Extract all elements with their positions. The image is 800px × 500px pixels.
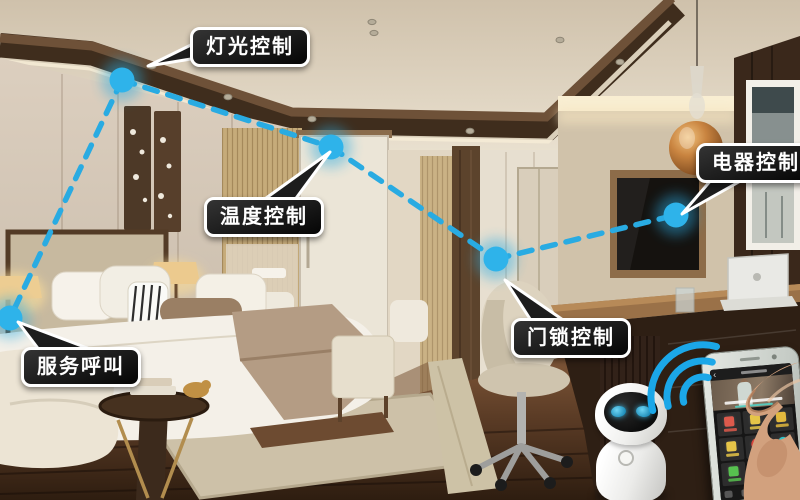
sensor-dot-appliance <box>664 203 689 228</box>
sensor-dot-light <box>110 68 135 93</box>
callout-appliance-control: 电器控制 <box>696 143 800 183</box>
callout-light-control: 灯光控制 <box>190 27 310 67</box>
callout-service-call: 服务呼叫 <box>21 347 141 387</box>
sensor-dot-doorlock <box>484 247 509 272</box>
link-light-temperature <box>122 80 331 147</box>
smart-hotel-room-diagram: 灯光控制 温度控制 电器控制 门锁控制 服务呼叫 ‹ <box>0 0 800 500</box>
connection-lines <box>10 80 676 318</box>
callout-tail-doorlock <box>505 280 566 322</box>
callout-doorlock-control: 门锁控制 <box>511 318 631 358</box>
callout-tail-appliance <box>682 179 744 214</box>
link-light-service <box>10 80 122 318</box>
link-temperature-doorlock <box>331 147 496 259</box>
callout-temperature-control: 温度控制 <box>204 197 324 237</box>
diagram-overlay <box>0 0 800 500</box>
sensor-dots <box>0 59 697 339</box>
wifi-signal-icon <box>651 345 717 411</box>
link-doorlock-appliance <box>496 215 676 259</box>
callout-tail-temperature <box>262 152 330 201</box>
